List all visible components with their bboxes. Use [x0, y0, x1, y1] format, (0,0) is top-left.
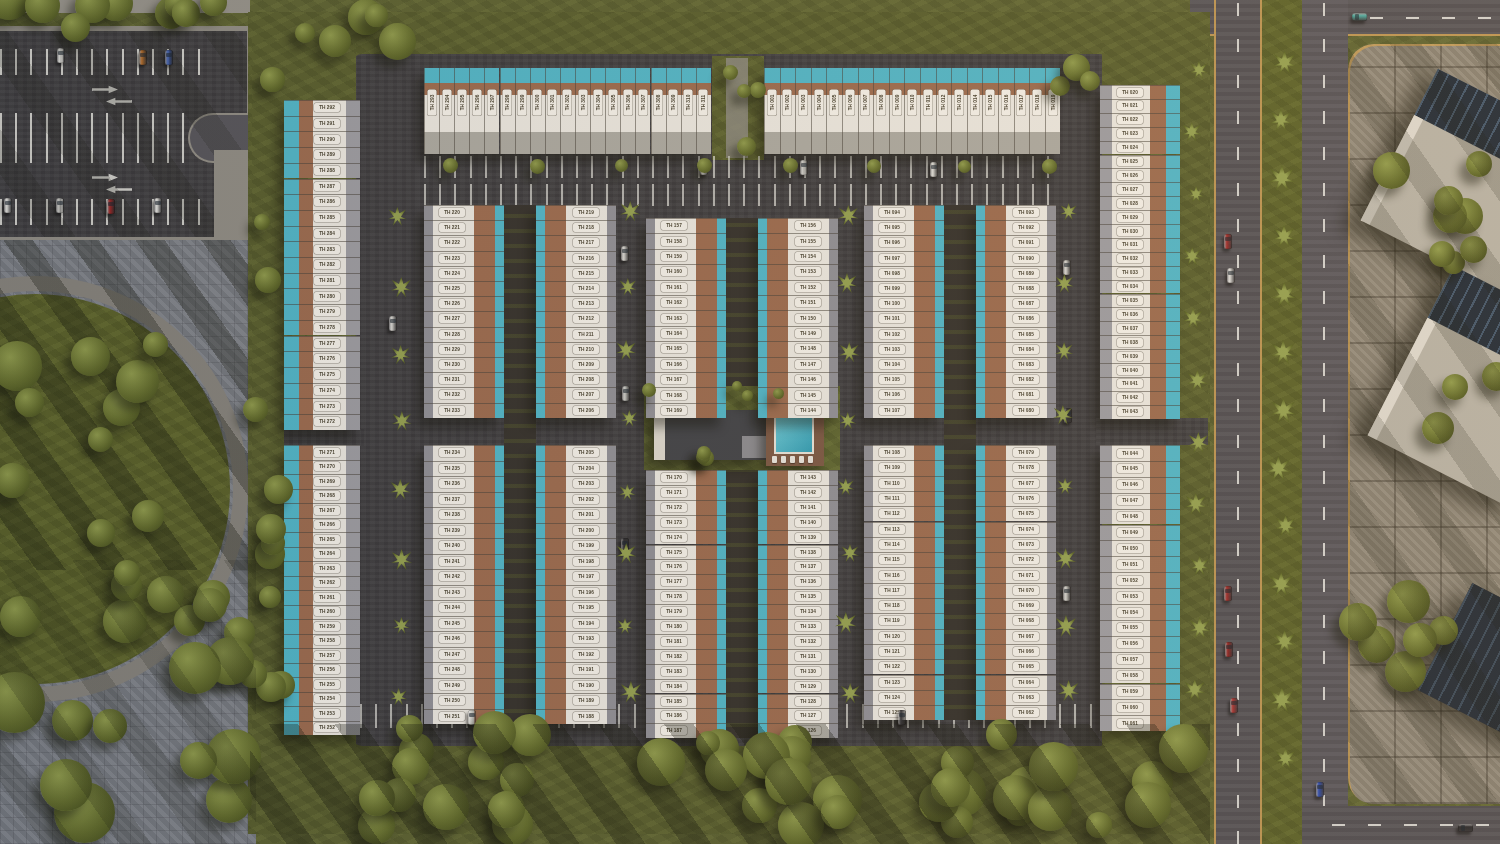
unit-number-text: TH 209	[573, 360, 599, 369]
unit-number-label: TH 066	[1013, 647, 1039, 656]
unit-number-label: TH 078	[1013, 463, 1039, 472]
unit-number-label: TH 141	[795, 503, 821, 512]
unit-number-text: TH 073	[1013, 540, 1039, 549]
unit-number-label: TH 164	[661, 329, 687, 338]
car-windshield	[1225, 589, 1231, 593]
townhouse-unit: TH 262	[284, 576, 360, 591]
unit-number-label: TH 178	[661, 592, 687, 601]
unit-number-label: TH 023	[1117, 129, 1143, 138]
townhouse-unit: TH 098	[864, 266, 944, 281]
townhouse-unit: TH 274	[284, 383, 360, 399]
unit-number-text: TH 137	[795, 562, 821, 571]
unit-number-text: TH 121	[879, 647, 905, 656]
unit-number-label: TH 284	[314, 229, 340, 238]
unit-number-label: TH 310	[684, 90, 693, 116]
car	[1316, 782, 1324, 797]
unit-number-text: TH 006	[845, 90, 854, 116]
townhouse-unit: TH 269	[284, 474, 360, 489]
tree-icon	[783, 158, 798, 173]
tree-icon	[260, 67, 285, 92]
townhouse-unit: TH 181	[646, 634, 726, 649]
car-windshield	[469, 713, 475, 717]
unit-number-label: TH 188	[573, 712, 599, 721]
unit-number-label: TH 065	[1013, 662, 1039, 671]
unit-number-label: TH 198	[573, 557, 599, 566]
unit-number-label: TH 237	[439, 495, 465, 504]
unit-number-label: TH 289	[314, 150, 340, 159]
unit-number-text: TH 184	[661, 682, 687, 691]
unit-number-text: TH 258	[314, 636, 340, 645]
car	[621, 246, 629, 261]
townhouse-unit: TH 017	[1014, 68, 1030, 154]
townhouse-unit: TH 150	[758, 310, 838, 325]
tree-icon	[379, 23, 416, 60]
unit-number-text: TH 079	[1013, 448, 1039, 457]
unit-number-label: TH 246	[439, 634, 465, 643]
unit-number-label: TH 029	[1117, 213, 1143, 222]
unit-number-label: TH 176	[661, 562, 687, 571]
unit-number-label: TH 003	[799, 90, 808, 116]
townhouse-unit: TH 206	[536, 403, 616, 418]
townhouse-unit: TH 147	[758, 357, 838, 372]
townhouse-unit: TH 109	[864, 460, 944, 475]
unit-number-text: TH 143	[795, 473, 821, 482]
townhouse-unit: TH 240	[424, 538, 504, 554]
unit-number-label: TH 303	[578, 90, 587, 116]
townhouse-unit: TH 069	[976, 598, 1056, 613]
unit-number-label: TH 301	[548, 90, 557, 116]
unit-number-text: TH 284	[314, 229, 340, 238]
unit-number-label: TH 082	[1013, 375, 1039, 384]
townhouse-row: TH 020TH 021TH 022TH 023TH 024TH 025TH 0…	[1100, 85, 1180, 419]
unit-number-text: TH 059	[1117, 687, 1143, 696]
unit-number-label: TH 059	[1117, 687, 1143, 696]
unit-number-label: TH 290	[314, 135, 340, 144]
unit-number-text: TH 040	[1117, 366, 1143, 375]
unit-number-label: TH 074	[1013, 525, 1039, 534]
unit-number-text: TH 055	[1117, 623, 1143, 632]
townhouse-unit: TH 190	[536, 678, 616, 694]
unit-number-text: TH 096	[879, 238, 905, 247]
tree-icon	[705, 749, 747, 791]
unit-number-label: TH 041	[1117, 379, 1143, 388]
unit-number-label: TH 047	[1117, 496, 1143, 505]
townhouse-unit: TH 179	[646, 604, 726, 619]
townhouse-unit: TH 254	[284, 692, 360, 707]
unit-number-text: TH 289	[314, 150, 340, 159]
townhouse-unit: TH 116	[864, 567, 944, 582]
unit-number-text: TH 242	[439, 572, 465, 581]
unit-number-label: TH 210	[573, 345, 599, 354]
tree-icon	[264, 475, 293, 504]
unit-number-label: TH 093	[1013, 208, 1039, 217]
townhouse-unit: TH 259	[284, 619, 360, 634]
tree-icon	[147, 576, 184, 613]
unit-number-text: TH 155	[795, 237, 821, 246]
unit-number-text: TH 032	[1117, 254, 1143, 263]
unit-number-label: TH 204	[573, 464, 599, 473]
townhouse-unit: TH 043	[1100, 405, 1180, 419]
tree-icon	[637, 738, 685, 786]
townhouse-unit: TH 261	[284, 590, 360, 605]
tree-icon	[750, 82, 766, 98]
townhouse-unit: TH 201	[536, 507, 616, 523]
unit-number-label: TH 154	[795, 252, 821, 261]
unit-number-label: TH 011	[923, 90, 932, 116]
unit-number-text: TH 015	[986, 90, 995, 116]
unit-number-label: TH 161	[661, 283, 687, 292]
car	[154, 198, 162, 213]
unit-number-label: TH 193	[573, 634, 599, 643]
townhouse-unit: TH 042	[1100, 391, 1180, 405]
unit-number-text: TH 031	[1117, 240, 1143, 249]
townhouse-unit: TH 168	[646, 387, 726, 402]
unit-number-label: TH 083	[1013, 360, 1039, 369]
parking-stalls	[0, 199, 200, 225]
unit-number-label: TH 169	[661, 406, 687, 415]
unit-number-label: TH 060	[1117, 703, 1143, 712]
unit-number-label: TH 115	[879, 555, 905, 564]
townhouse-unit: TH 101	[864, 311, 944, 326]
unit-number-label: TH 184	[661, 682, 687, 691]
townhouse-unit: TH 247	[424, 647, 504, 663]
unit-number-label: TH 212	[573, 314, 599, 323]
unit-number-label: TH 043	[1117, 407, 1143, 416]
unit-number-text: TH 239	[439, 526, 465, 535]
townhouse-unit: TH 272	[284, 414, 360, 430]
unit-number-label: TH 138	[795, 548, 821, 557]
unit-number-label: TH 305	[608, 90, 617, 116]
unit-number-text: TH 084	[1013, 345, 1039, 354]
unit-number-text: TH 024	[1117, 143, 1143, 152]
unit-number-label: TH 068	[1013, 616, 1039, 625]
unit-number-label: TH 062	[1013, 708, 1039, 717]
unit-number-text: TH 295	[457, 90, 466, 116]
unit-number-text: TH 090	[1013, 254, 1039, 263]
townhouse-unit: TH 233	[424, 403, 504, 418]
townhouse-unit: TH 286	[284, 194, 360, 210]
unit-number-text: TH 013	[955, 90, 964, 116]
unit-number-label: TH 139	[795, 533, 821, 542]
unit-number-label: TH 054	[1117, 608, 1143, 617]
unit-number-text: TH 254	[314, 694, 340, 703]
townhouse-unit: TH 104	[864, 357, 944, 372]
unit-number-label: TH 044	[1117, 449, 1143, 458]
unit-number-label: TH 063	[1013, 693, 1039, 702]
pool-lounger	[799, 456, 804, 463]
unit-number-label: TH 258	[314, 636, 340, 645]
unit-number-label: TH 049	[1117, 528, 1143, 537]
unit-number-label: TH 053	[1117, 592, 1143, 601]
townhouse-unit: TH 174	[646, 530, 726, 545]
clubhouse-annex	[742, 436, 768, 458]
townhouse-unit: TH 073	[976, 537, 1056, 552]
unit-number-label: TH 223	[439, 254, 465, 263]
unit-number-text: TH 124	[879, 693, 905, 702]
car-windshield	[1317, 785, 1323, 789]
lane-arrow-icon	[106, 97, 132, 106]
unit-number-text: TH 215	[573, 269, 599, 278]
townhouse-unit: TH 108	[864, 445, 944, 460]
townhouse-unit: TH 143	[758, 470, 838, 485]
unit-number-label: TH 205	[573, 448, 599, 457]
unit-number-text: TH 082	[1013, 375, 1039, 384]
unit-number-label: TH 222	[439, 238, 465, 247]
unit-number-label: TH 133	[795, 622, 821, 631]
townhouse-unit: TH 062	[976, 705, 1056, 720]
unit-number-text: TH 180	[661, 622, 687, 631]
unit-number-text: TH 151	[795, 298, 821, 307]
unit-number-label: TH 030	[1117, 227, 1143, 236]
townhouse-unit: TH 173	[646, 515, 726, 530]
unit-number-label: TH 174	[661, 533, 687, 542]
townhouse-unit: TH 016	[998, 68, 1014, 154]
townhouse-unit: TH 091	[976, 235, 1056, 250]
tree-icon	[778, 802, 824, 844]
townhouse-unit: TH 306	[620, 68, 635, 154]
unit-number-label: TH 038	[1117, 338, 1143, 347]
unit-number-text: TH 123	[879, 678, 905, 687]
unit-number-label: TH 111	[879, 494, 905, 503]
unit-number-text: TH 261	[314, 593, 340, 602]
unit-number-label: TH 056	[1117, 639, 1143, 648]
townhouse-unit: TH 106	[864, 387, 944, 402]
unit-number-text: TH 060	[1117, 703, 1143, 712]
townhouse-unit: TH 241	[424, 554, 504, 570]
townhouse-unit: TH 065	[976, 659, 1056, 674]
car-windshield	[155, 201, 161, 205]
townhouse-unit: TH 082	[976, 372, 1056, 387]
townhouse-unit: TH 281	[284, 273, 360, 289]
unit-number-text: TH 020	[1117, 88, 1143, 97]
townhouse-unit: TH 225	[424, 281, 504, 296]
unit-number-label: TH 282	[314, 260, 340, 269]
townhouse-unit: TH 020	[1100, 85, 1180, 99]
unit-number-text: TH 017	[1017, 90, 1026, 116]
unit-number-label: TH 298	[503, 90, 512, 116]
tree-icon	[143, 332, 168, 357]
unit-number-label: TH 254	[314, 694, 340, 703]
townhouse-unit: TH 293	[424, 68, 439, 154]
townhouse-unit: TH 220	[424, 205, 504, 220]
townhouse-unit: TH 159	[646, 249, 726, 264]
unit-number-label: TH 080	[1013, 406, 1039, 415]
townhouse-unit: TH 152	[758, 280, 838, 295]
townhouse-unit: TH 199	[536, 538, 616, 554]
unit-number-text: TH 089	[1013, 269, 1039, 278]
townhouse-row: TH 079TH 078TH 077TH 076TH 075TH 074TH 0…	[976, 445, 1056, 720]
unit-number-label: TH 302	[563, 90, 572, 116]
unit-number-label: TH 132	[795, 637, 821, 646]
car	[165, 50, 173, 65]
townhouse-unit: TH 271	[284, 445, 360, 460]
townhouse-unit: TH 238	[424, 507, 504, 523]
road-marking	[1237, 0, 1239, 844]
unit-number-label: TH 122	[879, 662, 905, 671]
car	[1063, 260, 1071, 275]
unit-number-text: TH 023	[1117, 129, 1143, 138]
unit-number-text: TH 188	[573, 712, 599, 721]
car-windshield	[166, 53, 172, 57]
unit-number-label: TH 148	[795, 344, 821, 353]
townhouse-unit: TH 195	[536, 600, 616, 616]
unit-number-text: TH 192	[573, 650, 599, 659]
townhouse-row: TH 094TH 095TH 096TH 097TH 098TH 099TH 1…	[864, 205, 944, 418]
unit-number-text: TH 296	[472, 90, 481, 116]
car-windshield	[622, 249, 628, 253]
unit-number-label: TH 033	[1117, 268, 1143, 277]
townhouse-unit: TH 063	[976, 690, 1056, 705]
unit-number-text: TH 110	[879, 479, 905, 488]
unit-number-label: TH 118	[879, 601, 905, 610]
townhouse-unit: TH 297	[484, 68, 499, 154]
unit-number-text: TH 157	[661, 221, 687, 230]
unit-number-label: TH 278	[314, 323, 340, 332]
unit-number-text: TH 196	[573, 588, 599, 597]
townhouse-unit: TH 044	[1100, 445, 1180, 461]
unit-number-text: TH 173	[661, 518, 687, 527]
unit-number-label: TH 152	[795, 283, 821, 292]
unit-number-text: TH 063	[1013, 693, 1039, 702]
unit-number-label: TH 195	[573, 603, 599, 612]
townhouse-unit: TH 294	[439, 68, 454, 154]
unit-number-label: TH 095	[879, 223, 905, 232]
unit-number-text: TH 010	[908, 90, 917, 116]
unit-number-label: TH 123	[879, 678, 905, 687]
unit-number-text: TH 014	[970, 90, 979, 116]
unit-number-text: TH 280	[314, 292, 340, 301]
unit-number-label: TH 098	[879, 269, 905, 278]
townhouse-unit: TH 093	[976, 205, 1056, 220]
unit-number-label: TH 017	[1017, 90, 1026, 116]
townhouse-unit: TH 133	[758, 619, 838, 634]
tree-icon	[1086, 812, 1112, 838]
unit-number-label: TH 070	[1013, 586, 1039, 595]
townhouse-unit: TH 015	[982, 68, 998, 154]
unit-number-label: TH 214	[573, 284, 599, 293]
townhouse-unit: TH 139	[758, 530, 838, 545]
unit-number-label: TH 094	[879, 208, 905, 217]
tree-icon	[256, 514, 286, 544]
unit-number-text: TH 081	[1013, 390, 1039, 399]
unit-number-label: TH 151	[795, 298, 821, 307]
unit-number-label: TH 273	[314, 402, 340, 411]
unit-number-text: TH 288	[314, 166, 340, 175]
unit-number-text: TH 012	[939, 90, 948, 116]
unit-number-label: TH 190	[573, 681, 599, 690]
unit-number-label: TH 088	[1013, 284, 1039, 293]
townhouse-unit: TH 077	[976, 476, 1056, 491]
tree-icon	[1028, 787, 1072, 831]
unit-number-text: TH 243	[439, 588, 465, 597]
townhouse-unit: TH 246	[424, 631, 504, 647]
townhouse-unit: TH 145	[758, 387, 838, 402]
unit-number-text: TH 171	[661, 488, 687, 497]
unit-number-text: TH 072	[1013, 555, 1039, 564]
unit-number-label: TH 242	[439, 572, 465, 581]
unit-number-label: TH 268	[314, 491, 340, 500]
unit-number-label: TH 061	[1117, 719, 1143, 728]
unit-number-text: TH 161	[661, 283, 687, 292]
unit-number-text: TH 286	[314, 197, 340, 206]
townhouse-unit: TH 291	[284, 116, 360, 132]
townhouse-unit: TH 032	[1100, 252, 1180, 266]
unit-number-label: TH 103	[879, 345, 905, 354]
tree-icon	[259, 586, 281, 608]
unit-number-label: TH 120	[879, 632, 905, 641]
townhouse-unit: TH 278	[284, 320, 360, 336]
townhouse-unit: TH 176	[646, 559, 726, 574]
unit-number-text: TH 287	[314, 182, 340, 191]
unit-number-text: TH 026	[1117, 171, 1143, 180]
townhouse-unit: TH 309	[666, 68, 681, 154]
unit-number-text: TH 135	[795, 592, 821, 601]
unit-number-label: TH 137	[795, 562, 821, 571]
unit-number-label: TH 071	[1013, 571, 1039, 580]
unit-number-label: TH 114	[879, 540, 905, 549]
townhouse-unit: TH 221	[424, 220, 504, 235]
townhouse-unit: TH 135	[758, 589, 838, 604]
townhouse-unit: TH 160	[646, 264, 726, 279]
tree-icon	[1080, 71, 1100, 91]
unit-number-label: TH 037	[1117, 324, 1143, 333]
townhouse-row: TH 044TH 045TH 046TH 047TH 048TH 049TH 0…	[1100, 445, 1180, 731]
unit-number-label: TH 105	[879, 375, 905, 384]
unit-number-text: TH 009	[892, 90, 901, 116]
unit-number-label: TH 194	[573, 619, 599, 628]
unit-number-label: TH 158	[661, 237, 687, 246]
unit-number-text: TH 247	[439, 650, 465, 659]
townhouse-unit: TH 138	[758, 545, 838, 560]
unit-number-label: TH 147	[795, 360, 821, 369]
unit-number-label: TH 216	[573, 254, 599, 263]
unit-number-text: TH 226	[439, 299, 465, 308]
unit-number-text: TH 229	[439, 345, 465, 354]
unit-number-text: TH 263	[314, 564, 340, 573]
car-windshield	[899, 713, 905, 717]
townhouse-unit: TH 071	[976, 567, 1056, 582]
townhouse-row: TH 143TH 142TH 141TH 140TH 139TH 138TH 1…	[758, 470, 838, 738]
unit-number-text: TH 267	[314, 506, 340, 515]
unit-number-text: TH 078	[1013, 463, 1039, 472]
unit-number-text: TH 057	[1117, 655, 1143, 664]
unit-number-label: TH 006	[845, 90, 854, 116]
townhouse-unit: TH 092	[976, 220, 1056, 235]
tree-icon	[1373, 152, 1410, 189]
unit-number-text: TH 025	[1117, 157, 1143, 166]
unit-number-text: TH 178	[661, 592, 687, 601]
unit-number-text: TH 046	[1117, 480, 1143, 489]
car	[389, 316, 397, 331]
unit-number-text: TH 093	[1013, 208, 1039, 217]
lane-arrow-icon	[92, 173, 118, 182]
unit-number-label: TH 039	[1117, 352, 1143, 361]
unit-number-label: TH 113	[879, 525, 905, 534]
unit-number-text: TH 051	[1117, 560, 1143, 569]
townhouse-unit: TH 230	[424, 357, 504, 372]
townhouse-unit: TH 307	[635, 68, 650, 154]
unit-number-text: TH 062	[1013, 708, 1039, 717]
unit-number-label: TH 084	[1013, 345, 1039, 354]
unit-number-text: TH 097	[879, 254, 905, 263]
townhouse-unit: TH 277	[284, 336, 360, 352]
unit-number-text: TH 208	[573, 375, 599, 384]
unit-number-text: TH 160	[661, 267, 687, 276]
unit-number-label: TH 253	[314, 709, 340, 718]
unit-number-text: TH 259	[314, 622, 340, 631]
unit-number-text: TH 115	[879, 555, 905, 564]
unit-number-text: TH 149	[795, 329, 821, 338]
